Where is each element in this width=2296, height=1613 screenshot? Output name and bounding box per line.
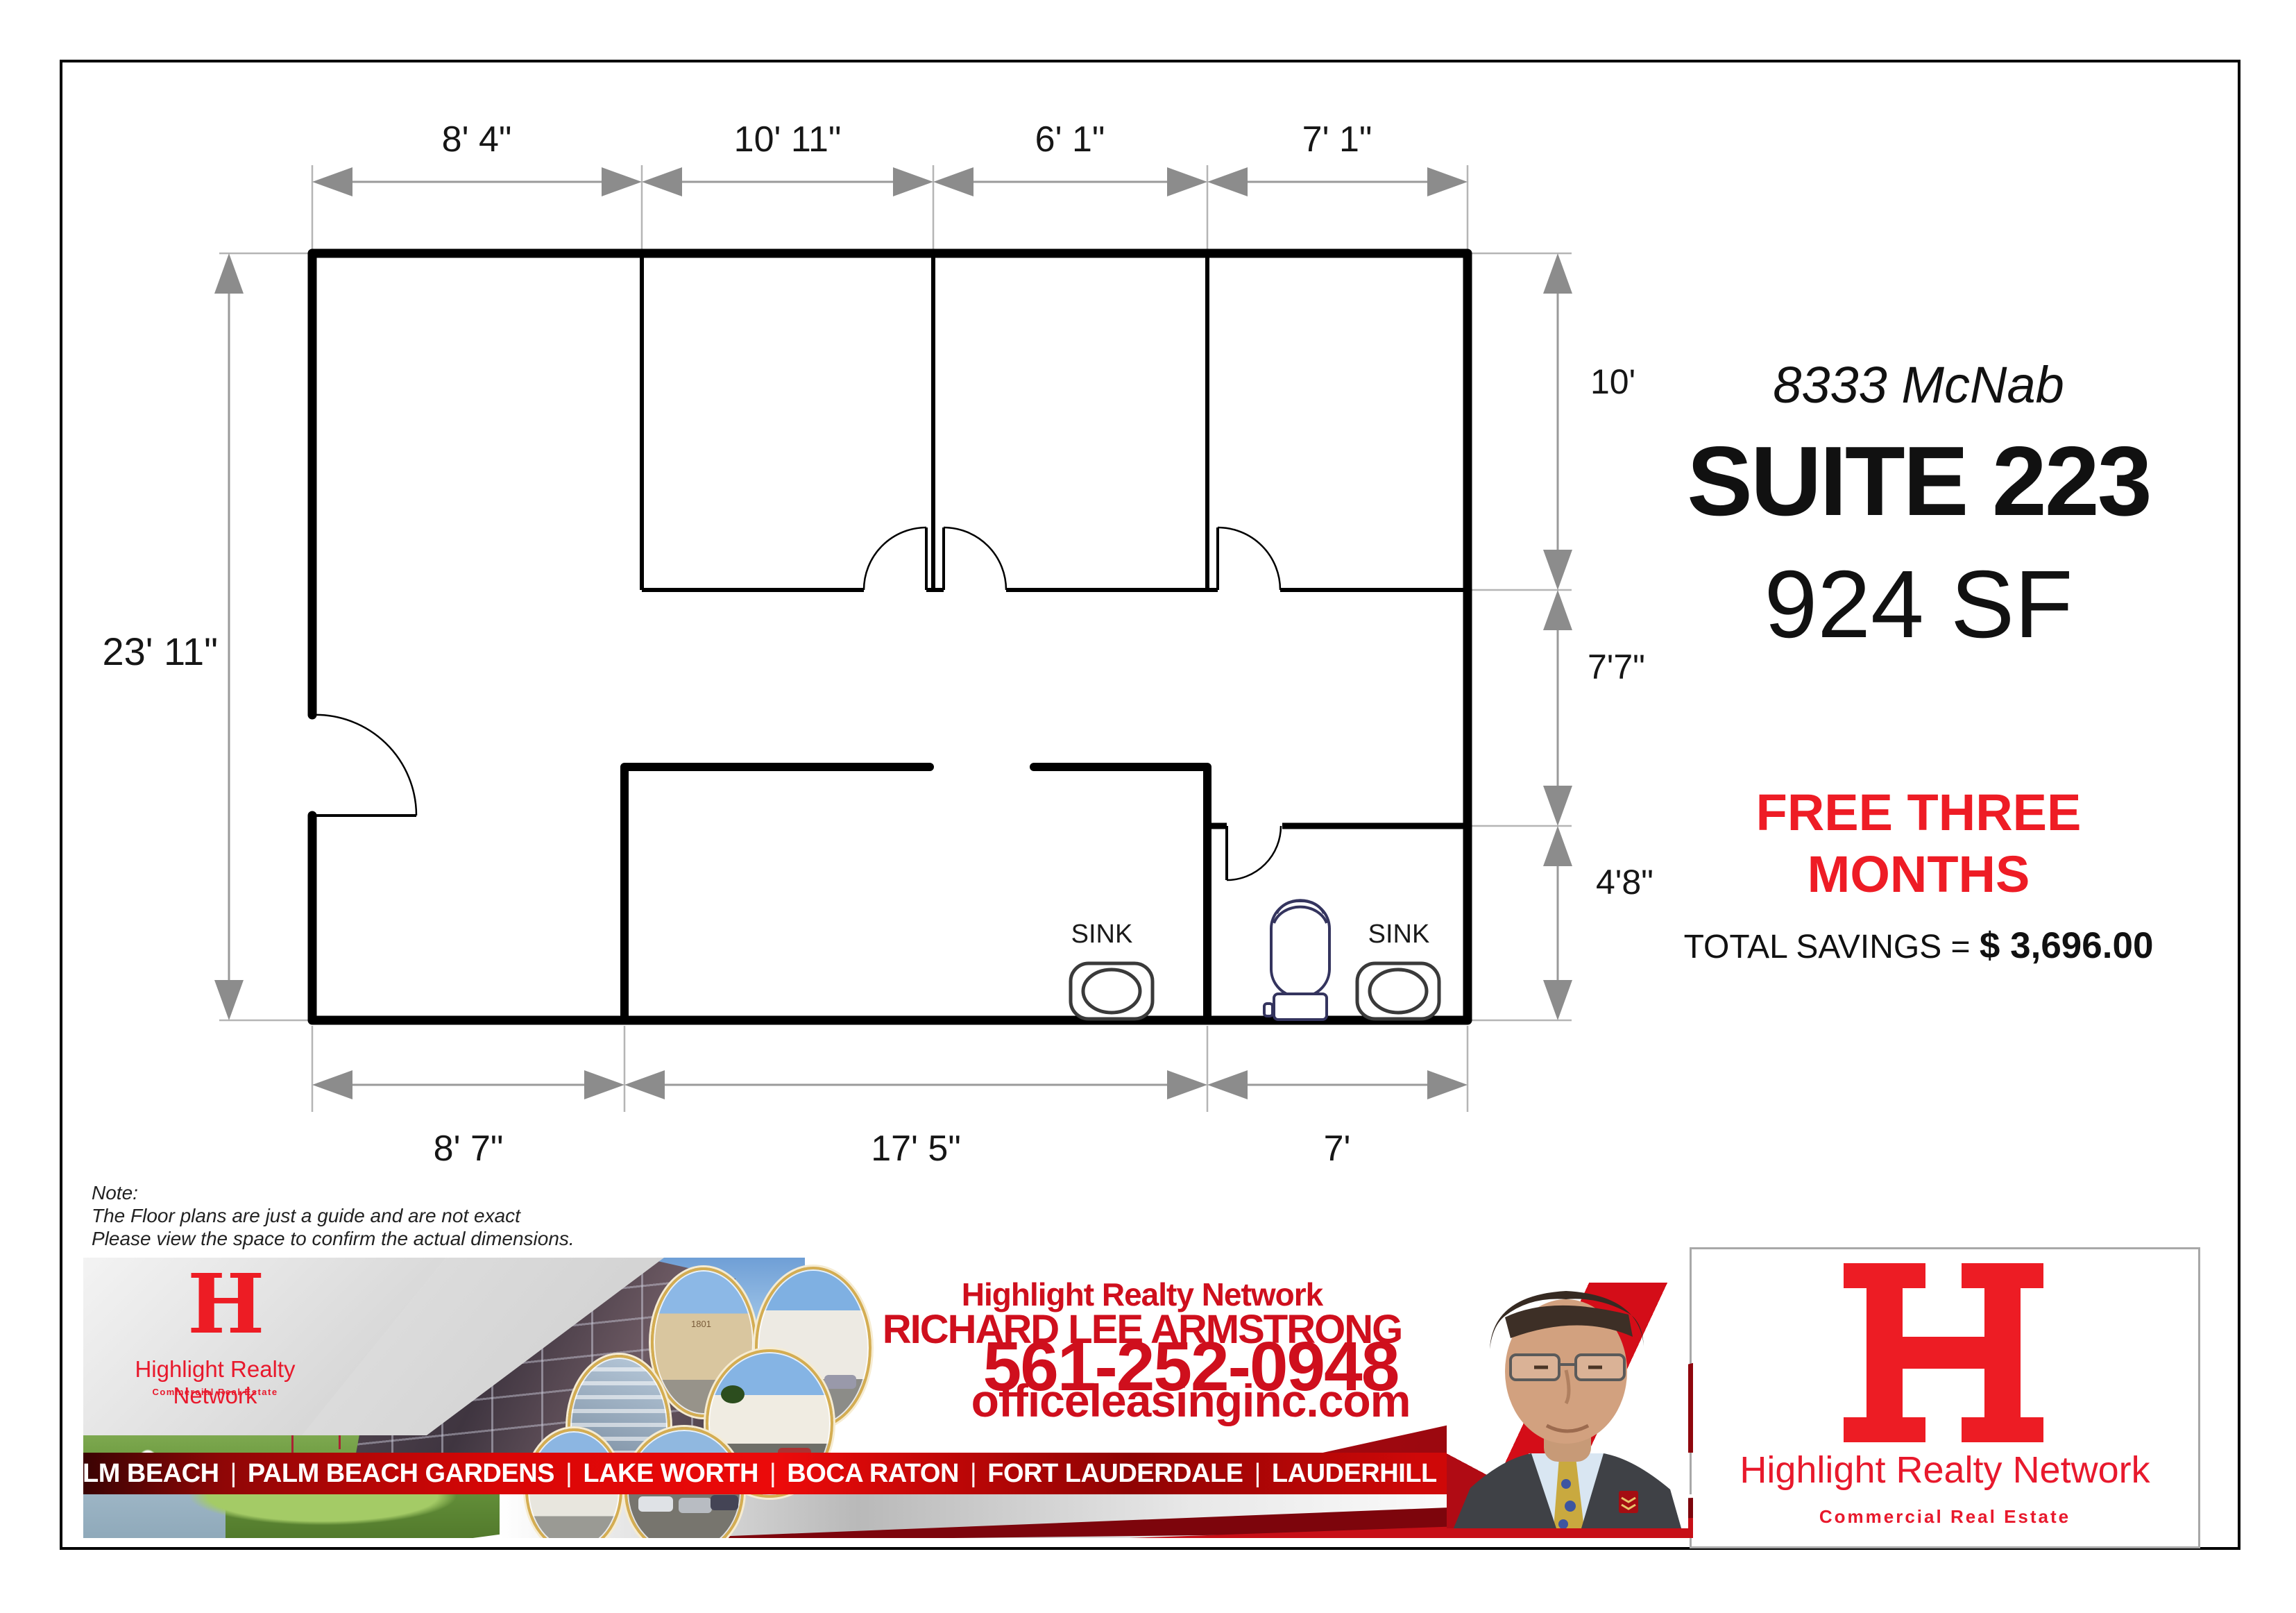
sink-right-label: SINK — [1368, 920, 1430, 949]
brand-logo-name: Highlight Realty Network — [90, 1356, 340, 1409]
city-separator: | — [769, 1459, 776, 1489]
promo-offer: FREE THREE MONTHS — [1665, 782, 2172, 905]
city-item: FORT LAUDERDALE — [987, 1459, 1243, 1489]
car-shape — [711, 1495, 738, 1510]
office-partition-walls — [642, 253, 1468, 590]
sink-left — [1071, 963, 1153, 1019]
city-separator: | — [1255, 1459, 1261, 1489]
dim-lines — [229, 182, 1558, 1085]
palm-shape — [721, 1385, 745, 1403]
company-tagline: Commercial Real Estate — [1692, 1506, 2198, 1528]
city-item: LAKE WORTH — [583, 1459, 758, 1489]
promo-line-1: FREE THREE — [1665, 782, 2172, 843]
city-item: WEST PALM BEACH — [83, 1459, 219, 1489]
listing-address: 8333 McNab — [1665, 355, 2172, 414]
listing-suite: SUITE 223 — [1651, 425, 2186, 539]
dim-bottom-2: 17' 5" — [871, 1129, 961, 1169]
savings-value: $ 3,696.00 — [1980, 925, 2154, 966]
door-swing-arcs — [312, 527, 1281, 880]
note-line-2: Please view the space to confirm the act… — [92, 1227, 785, 1250]
brand-logo-tagline: Commercial Real Estate — [90, 1387, 340, 1397]
note-title: Note: — [92, 1181, 785, 1204]
disclaimer-note: Note: The Floor plans are just a guide a… — [92, 1181, 785, 1250]
promo-line-2: MONTHS — [1665, 843, 2172, 905]
city-item: LAUDERHILL — [1272, 1459, 1437, 1489]
brand-h-letter: H — [187, 1263, 265, 1345]
city-item: BOCA RATON — [787, 1459, 959, 1489]
car-shape — [638, 1496, 673, 1512]
website-link[interactable]: officeleasinginc.com — [895, 1374, 1486, 1427]
total-savings: TOTAL SAVINGS = $ 3,696.00 — [1644, 924, 2193, 967]
dim-right-1: 10' — [1590, 362, 1635, 401]
dim-top-2: 10' 11" — [734, 119, 842, 160]
contact-block: Highlight Realty Network RICHARD LEE ARM… — [805, 1258, 1478, 1453]
city-separator: | — [566, 1459, 572, 1489]
listing-area: 924 SF — [1665, 550, 2172, 660]
agent-banner: H Highlight Realty Network Commercial Re… — [83, 1258, 1693, 1538]
dim-bottom-3: 7' — [1324, 1129, 1351, 1169]
company-logo-box: Highlight Realty Network Commercial Real… — [1690, 1247, 2200, 1548]
dim-top-4: 7' 1" — [1302, 119, 1372, 160]
dim-left: 23' 11" — [102, 630, 218, 673]
agent-portrait-graphic — [1447, 1283, 1688, 1528]
dim-top-3: 6' 1" — [1035, 119, 1105, 160]
city-item: PALM BEACH GARDENS — [248, 1459, 554, 1489]
sink-right — [1357, 963, 1439, 1019]
dim-right-2: 7'7" — [1588, 648, 1645, 686]
flyer-page: 8' 4" 10' 11" 6' 1" 7' 1" 23' 11" 10' 7'… — [0, 0, 2296, 1613]
lapel-pin-icon — [1619, 1491, 1638, 1513]
dim-top-1: 8' 4" — [442, 119, 512, 160]
dim-bottom-1: 8' 7" — [434, 1129, 504, 1169]
city-strip: WEST PALM BEACH|PALM BEACH GARDENS|LAKE … — [83, 1453, 1478, 1494]
car-shape — [679, 1498, 712, 1513]
company-name: Highlight Realty Network — [1692, 1449, 2198, 1492]
city-separator: | — [970, 1459, 976, 1489]
sink-left-label: SINK — [1071, 920, 1133, 949]
company-h-logo — [1692, 1259, 2198, 1446]
inset-building-number: 1801 — [691, 1319, 711, 1329]
savings-label: TOTAL SAVINGS = — [1684, 929, 1980, 965]
dim-arrowheads — [214, 167, 1572, 1099]
door-leaves — [312, 527, 1227, 880]
dim-right-3: 4'8" — [1596, 863, 1653, 902]
note-line-1: The Floor plans are just a guide and are… — [92, 1204, 785, 1227]
city-separator: | — [230, 1459, 237, 1489]
agent-photo — [1447, 1283, 1688, 1528]
toilet — [1264, 900, 1329, 1020]
